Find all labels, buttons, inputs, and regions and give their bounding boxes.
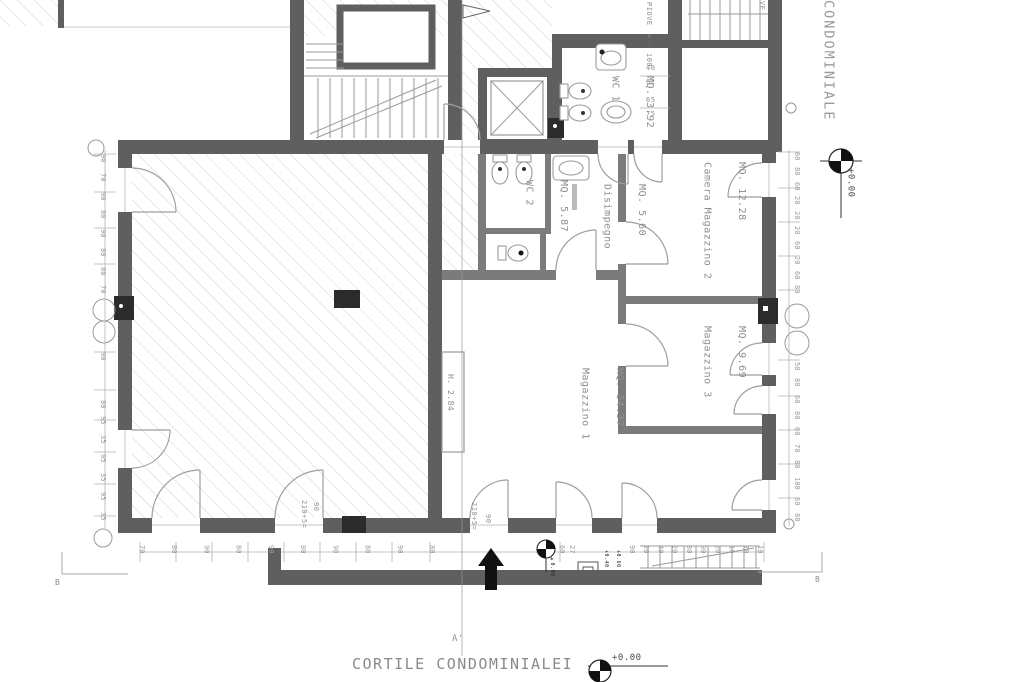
dim-value: 80	[99, 210, 107, 218]
dim-value: 80	[99, 248, 107, 256]
room-label-magazzino3: Magazzino 3 MQ. 9.69	[678, 326, 759, 410]
height-label: H. 2.84	[446, 374, 455, 411]
dim-value: 95	[99, 454, 107, 462]
dim-value: 70	[99, 285, 107, 293]
room-area: MQ. 34.37	[614, 368, 626, 460]
dim-value: 90	[331, 545, 339, 553]
level-entry: ±0.00	[548, 556, 554, 577]
top-right-staircase	[688, 0, 768, 40]
piove-partial-note: VE	[758, 1, 766, 10]
piove-level-note: = - 100	[645, 34, 653, 67]
cortile-label: CORTILE CONDOMINIALEI	[352, 656, 573, 673]
dim-pair-bottom: 6027	[558, 545, 576, 553]
dim-value: 95	[99, 416, 107, 424]
dim-value: 90	[99, 192, 107, 200]
dim-value: 20	[793, 226, 801, 234]
dim-value: 90	[202, 545, 210, 553]
wc-dim-2-bottom: 75	[646, 110, 655, 118]
dim-value: 35	[99, 512, 107, 520]
dim-value: 80	[793, 411, 801, 419]
door-dim-2-width: 90	[484, 514, 492, 523]
dim-chain-bottom-left: 70809080908090809080	[138, 545, 436, 553]
dim-chain-right-upper: 60806020202060206080	[786, 152, 808, 294]
condominiale-vertical-label: CONDOMINIALE	[820, 0, 836, 138]
wc-dim-1-top: 40	[646, 64, 655, 72]
dim-value: 80	[299, 545, 307, 553]
wc-dim-1-bottom: 62	[646, 78, 655, 86]
door-dim-1-height: 210+5=	[300, 500, 308, 528]
dim-value: 80	[99, 400, 107, 408]
level-steps-a: +0.40	[602, 550, 608, 568]
dim-value: 90	[99, 154, 107, 162]
benchmark-right	[820, 149, 862, 218]
dim-value: 10	[756, 545, 764, 553]
dim-value: 10	[728, 545, 736, 553]
dim-value: 100	[793, 477, 801, 490]
dim-chain-left-lower: 953595359535	[92, 416, 114, 520]
dim-value: 50	[793, 362, 801, 370]
door-dim-2-height: 210+5=	[470, 502, 478, 530]
dim-value: 80	[793, 513, 801, 521]
room-name: WC 2	[523, 180, 535, 244]
dim-value: 70	[742, 545, 750, 553]
level-right: +0.00	[845, 168, 855, 198]
piove-note: PIOVE	[645, 2, 653, 26]
dim-value: 70	[99, 173, 107, 181]
level-steps-b: +0.60	[614, 550, 620, 568]
dim-value: 20	[671, 545, 679, 553]
floor-plan: CONDOMINIALE CORTILE CONDOMINIALEI WC 1 …	[0, 0, 1024, 682]
dim-value: 90	[699, 545, 707, 553]
dim-value: 60	[793, 182, 801, 190]
dim-value: 80	[793, 378, 801, 386]
section-a-label: A'	[452, 634, 464, 644]
dim-value: 95	[99, 492, 107, 500]
dim-value: 30	[685, 545, 693, 553]
dim-value: 20	[793, 211, 801, 219]
door-dim-1-width: 90	[312, 502, 320, 511]
dim-value: 80	[793, 285, 801, 293]
dim-value: 60	[793, 427, 801, 435]
dim-value: 20	[793, 256, 801, 264]
room-area: MQ. 5.87	[558, 180, 570, 244]
dim-value: 90	[99, 352, 107, 360]
dim-value: 90	[396, 545, 404, 553]
room-name: Magazzino 1	[579, 368, 591, 460]
dim-value: 90	[99, 229, 107, 237]
dim-chain-right-lower: 508060806070801006080	[786, 362, 808, 522]
dim-chain-left-mid: 9080	[92, 352, 114, 408]
dim-value: 80	[793, 167, 801, 175]
dim-value: 80	[793, 460, 801, 468]
dim-value: 70	[138, 545, 146, 553]
dim-value: 20	[793, 196, 801, 204]
dim-value: 90	[267, 545, 275, 553]
dim-value: 90	[628, 545, 636, 553]
dim-value: 60	[793, 271, 801, 279]
dim-value: 60	[793, 241, 801, 249]
hatch-regions	[0, 0, 552, 518]
room-name: Camera Magazzino 2	[701, 162, 713, 290]
plan-drawing	[0, 0, 1024, 682]
dim-chain-left-upper: 9070908090808070	[92, 154, 114, 294]
dim-value: 80	[428, 545, 436, 553]
dim-value: 27	[568, 545, 576, 553]
room-area: MQ. 12.28	[736, 162, 748, 290]
dim-value: 60	[793, 497, 801, 505]
dim-value: 60	[558, 545, 566, 553]
section-b-right-label: B	[815, 575, 820, 584]
dim-value: 60	[793, 152, 801, 160]
elevator-shaft	[478, 68, 556, 148]
room-label-magazzino1: Magazzino 1 MQ. 34.37	[556, 368, 637, 460]
room-area: MQ. 9.69	[736, 326, 748, 410]
dim-value: 20	[713, 545, 721, 553]
dim-value: 35	[99, 435, 107, 443]
section-b-left-label: B	[55, 578, 60, 587]
room-name: Magazzino 3	[701, 326, 713, 410]
dim-value: 70	[793, 444, 801, 452]
dim-value: 35	[99, 473, 107, 481]
dim-value: 80	[99, 267, 107, 275]
room-name: Disimpegno	[601, 184, 613, 264]
room-label-wc2: WC 2 MQ. 5.87	[500, 180, 581, 244]
level-courtyard: +0.00	[612, 653, 642, 663]
room-label-camera-magazzino2: Camera Magazzino 2 MQ. 12.28	[678, 162, 759, 290]
room-label-disimpegno: Disimpegno MQ. 5.60	[578, 184, 659, 264]
dim-value: 80	[170, 545, 178, 553]
dim-value: 60	[793, 395, 801, 403]
room-name: WC 1	[609, 76, 621, 136]
dim-value: 80	[364, 545, 372, 553]
courtyard-wall	[268, 548, 762, 585]
room-area: MQ. 5.60	[636, 184, 648, 264]
dim-value: 80	[235, 545, 243, 553]
wc-dim-2-top: 65	[646, 96, 655, 104]
dim-value: 20	[642, 545, 650, 553]
dim-chain-bottom-right: 90204020309020107010	[628, 545, 764, 553]
dim-value: 40	[656, 545, 664, 553]
